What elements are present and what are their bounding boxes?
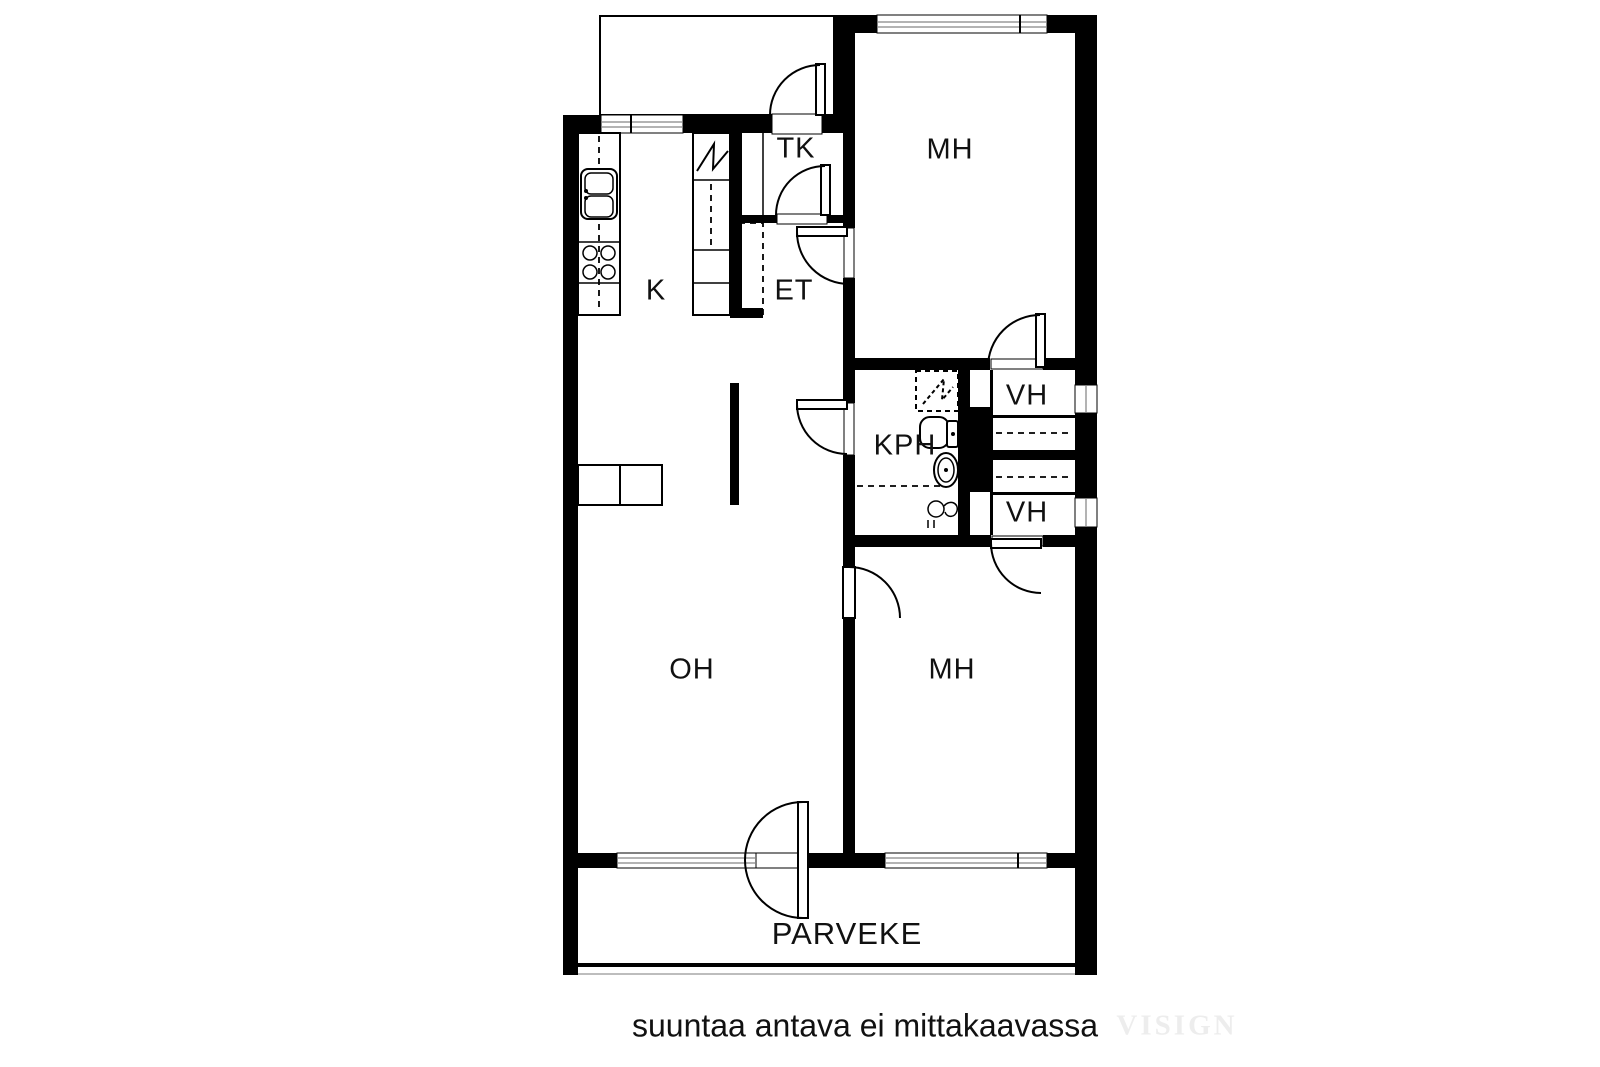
closet-upper-window xyxy=(1075,385,1097,413)
tk-door xyxy=(776,165,830,215)
kitchen-tall-cabinet xyxy=(693,133,730,315)
closet-lower-window xyxy=(1075,498,1097,527)
room-label-tk: TK xyxy=(776,133,815,166)
tk-threshold xyxy=(777,214,827,224)
floor-plan: K TK ET MH KPH VH VH OH MH PARVEKE suunt… xyxy=(0,0,1600,1067)
wall-segment-bottom-c xyxy=(1047,853,1075,868)
wall-kph-mh-lower-b xyxy=(1043,535,1075,547)
wall-hall-mh-a xyxy=(843,15,855,228)
wall-vh-divider-3 xyxy=(993,492,1075,495)
wall-tk-et-b xyxy=(827,215,843,223)
wall-mh-kph-b xyxy=(1043,358,1075,370)
wall-hall-kph-c xyxy=(843,455,855,545)
wall-kph-east xyxy=(958,358,970,547)
wall-oh-mh-b xyxy=(843,618,855,853)
doors xyxy=(745,64,1045,918)
disclaimer-caption: suuntaa antava ei mittakaavassa xyxy=(632,1008,1098,1045)
entrance-threshold xyxy=(772,114,822,134)
wall-segment-bottom-b xyxy=(808,853,885,868)
kitchen-sink xyxy=(581,169,617,219)
oh-cabinet-right xyxy=(620,465,662,505)
wall-segment-bottom-a xyxy=(563,853,617,868)
kph-threshold xyxy=(844,403,854,455)
room-label-balcony: PARVEKE xyxy=(772,916,923,952)
room-label-closet-upper: VH xyxy=(1006,380,1048,413)
wall-segment-left xyxy=(563,115,578,975)
wall-vh-divider-1 xyxy=(993,415,1075,418)
wall-vh-west-line xyxy=(990,370,993,535)
oh-cabinet-left xyxy=(578,465,620,505)
room-label-kitchen: K xyxy=(646,275,666,308)
wall-segment-top-a xyxy=(563,115,601,133)
bedroom-upper-window xyxy=(877,15,1047,33)
wall-oh-mh-a xyxy=(843,535,855,567)
water-heater xyxy=(916,371,958,411)
wall-kph-mh-lower-a xyxy=(843,535,991,547)
watermark: VISIGN xyxy=(1116,1010,1237,1043)
balcony-railing xyxy=(578,963,1075,975)
room-label-bedroom-upper: MH xyxy=(926,134,973,167)
washbasin xyxy=(934,453,958,487)
room-label-living-room: OH xyxy=(669,654,715,687)
living-room-window xyxy=(617,853,756,868)
room-label-bedroom-lower: MH xyxy=(928,654,975,687)
room-label-et: ET xyxy=(774,275,813,308)
wall-segment-right xyxy=(1075,15,1097,975)
wall-tk-et-a xyxy=(742,215,777,223)
wall-stub-oh xyxy=(730,383,739,505)
wall-kitchen-hall xyxy=(730,133,742,318)
balcony-railing-line xyxy=(578,963,1075,967)
balcony-slab-edge xyxy=(578,973,1075,975)
bedroom-lower-window xyxy=(885,853,1047,868)
vh-lower-door xyxy=(991,539,1041,593)
room-label-closet-lower: VH xyxy=(1006,497,1048,530)
kitchen-window xyxy=(601,115,683,133)
wall-hall-mh-b xyxy=(843,278,855,403)
kph-door xyxy=(797,400,847,454)
bedroom-lower-door xyxy=(843,567,900,618)
et-wardrobe-reservation xyxy=(739,223,763,317)
room-label-bathroom: KPH xyxy=(874,430,937,463)
laundry-connection-icon xyxy=(928,501,957,528)
wall-vh-divider-2 xyxy=(993,450,1075,460)
wall-segment-top-b xyxy=(683,115,772,133)
duct-shaft xyxy=(970,407,990,492)
